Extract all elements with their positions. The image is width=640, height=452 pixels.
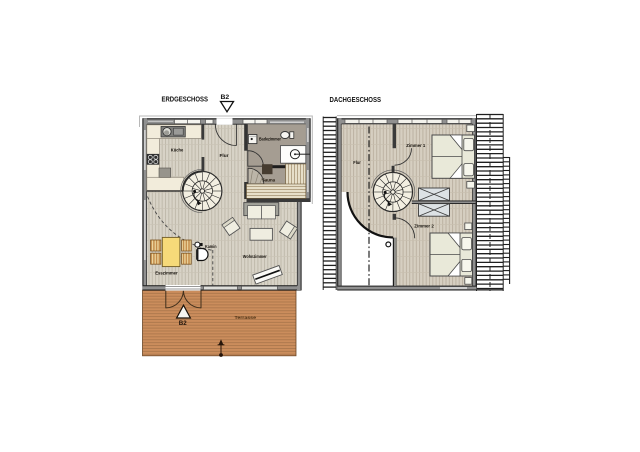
svg-text:Flur: Flur [353,160,361,165]
svg-text:Kamin: Kamin [205,244,217,249]
svg-text:B2: B2 [179,320,187,327]
svg-text:B2: B2 [221,94,230,101]
svg-text:DACHGESCHOSS: DACHGESCHOSS [330,95,382,104]
svg-text:ERDGESCHOSS: ERDGESCHOSS [162,95,209,104]
svg-text:Flur: Flur [220,153,229,158]
svg-text:Wohnzimmer: Wohnzimmer [243,254,267,259]
svg-text:Sauna: Sauna [262,178,276,183]
svg-text:Küche: Küche [171,147,184,152]
svg-text:Badezimmer: Badezimmer [259,136,281,141]
svg-text:Esszimmer: Esszimmer [155,270,178,275]
svg-text:Zimmer 1: Zimmer 1 [406,143,426,148]
svg-text:Terrasse: Terrasse [235,315,257,320]
svg-text:Zimmer 2: Zimmer 2 [414,223,434,228]
